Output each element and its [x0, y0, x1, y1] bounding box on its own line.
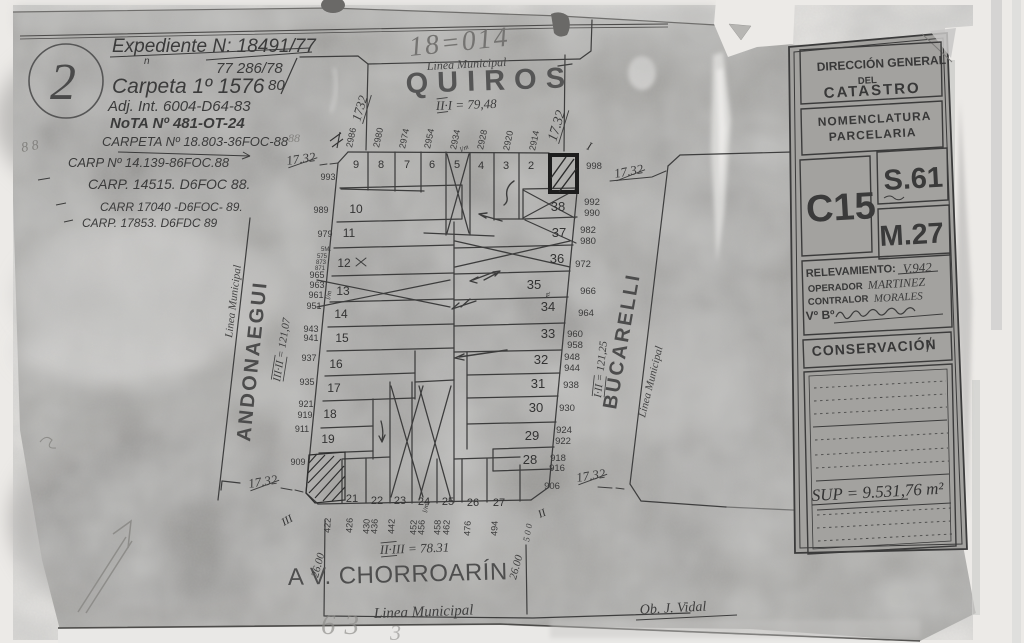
svg-text:456: 456 [416, 520, 427, 536]
svg-text:930: 930 [559, 403, 575, 414]
svg-text:29: 29 [525, 428, 539, 443]
svg-text:28: 28 [523, 452, 537, 467]
svg-text:l/m: l/m [421, 503, 430, 513]
svg-text:14: 14 [334, 307, 348, 321]
svg-text:88: 88 [288, 131, 300, 145]
svg-text:462: 462 [441, 520, 452, 536]
svg-text:M.27: M.27 [879, 217, 945, 253]
svg-text:989: 989 [313, 205, 328, 215]
svg-text:25: 25 [442, 496, 454, 508]
svg-text:Vº Bº: Vº Bº [805, 307, 835, 323]
svg-text:906: 906 [544, 481, 560, 492]
svg-text:916: 916 [549, 463, 565, 474]
svg-text:22: 22 [371, 495, 383, 507]
svg-text:965: 965 [309, 270, 324, 280]
svg-text:30: 30 [529, 400, 543, 415]
svg-text:964: 964 [578, 308, 594, 319]
svg-text:5: 5 [454, 159, 460, 171]
svg-text:CARR 17040 -D6FOC- 89.: CARR 17040 -D6FOC- 89. [100, 200, 243, 214]
svg-text:422: 422 [322, 518, 333, 534]
svg-text:990: 990 [584, 208, 600, 219]
svg-text:9: 9 [353, 159, 359, 171]
svg-text:426: 426 [344, 518, 355, 534]
svg-text:Carpeta 1º 1576: Carpeta 1º 1576 [112, 75, 265, 98]
svg-text:CARP. 17853. D6FDC 89: CARP. 17853. D6FDC 89 [82, 216, 218, 230]
svg-text:3: 3 [389, 620, 401, 643]
svg-text:979: 979 [317, 229, 332, 239]
svg-text:18: 18 [323, 407, 337, 421]
svg-text:4: 4 [478, 160, 484, 172]
svg-text:992: 992 [584, 197, 600, 208]
svg-text:Adj. Int. 6004-D64-83: Adj. Int. 6004-D64-83 [107, 98, 251, 115]
svg-text:972: 972 [575, 259, 591, 270]
svg-text:12: 12 [337, 256, 351, 270]
svg-text:11: 11 [343, 226, 356, 240]
svg-text:16: 16 [329, 357, 343, 371]
svg-text:998: 998 [586, 161, 602, 172]
svg-text:919: 919 [297, 410, 312, 420]
svg-text:10: 10 [349, 202, 363, 216]
svg-text:909: 909 [290, 457, 305, 467]
svg-text:924: 924 [556, 425, 572, 436]
svg-text:15: 15 [335, 331, 349, 345]
svg-text:3: 3 [503, 160, 509, 172]
svg-text:958: 958 [567, 340, 583, 351]
svg-text:27: 27 [493, 497, 505, 509]
svg-text:n: n [144, 56, 150, 67]
svg-text:922: 922 [555, 436, 571, 447]
svg-text:938: 938 [563, 380, 579, 391]
svg-text:S.61: S.61 [883, 162, 944, 197]
svg-text:C15: C15 [805, 185, 877, 231]
svg-text:966: 966 [580, 286, 596, 297]
svg-text:961: 961 [308, 290, 323, 300]
svg-text:7: 7 [404, 159, 410, 171]
svg-text:921: 921 [298, 399, 313, 409]
svg-text:17: 17 [327, 381, 341, 395]
svg-text:35: 35 [527, 277, 541, 292]
svg-text:911: 911 [295, 424, 309, 434]
svg-text:980: 980 [580, 236, 596, 247]
svg-text:34: 34 [541, 299, 555, 314]
svg-text:960: 960 [567, 329, 583, 340]
svg-text:941: 941 [303, 333, 318, 343]
svg-text:937: 937 [301, 353, 316, 363]
svg-text:993: 993 [320, 172, 335, 182]
svg-text:38: 38 [551, 199, 565, 214]
svg-text:63: 63 [321, 609, 368, 641]
svg-text:NoTA Nº 481-OT-24: NoTA Nº 481-OT-24 [110, 115, 245, 132]
svg-text:21: 21 [346, 493, 358, 505]
svg-text:948: 948 [564, 352, 580, 363]
svg-text:23: 23 [394, 495, 406, 507]
svg-text:951: 951 [306, 301, 321, 311]
svg-text:944: 944 [564, 363, 580, 374]
svg-text:476: 476 [462, 521, 473, 537]
svg-text:436: 436 [369, 519, 380, 535]
svg-text:32: 32 [534, 352, 548, 367]
svg-text:494: 494 [489, 521, 500, 537]
svg-text:CARPETA Nº 18.803-36FOC-88: CARPETA Nº 18.803-36FOC-88 [102, 134, 289, 149]
svg-text:6: 6 [429, 159, 435, 171]
svg-text:19: 19 [321, 432, 335, 446]
svg-text:CARP Nº 14.139-86FOC.88: CARP Nº 14.139-86FOC.88 [68, 155, 230, 170]
svg-text:982: 982 [580, 225, 596, 236]
svg-text:33: 33 [541, 326, 555, 341]
svg-text:2: 2 [528, 160, 534, 172]
svg-text:935: 935 [299, 377, 314, 387]
svg-text:26: 26 [467, 497, 479, 509]
svg-text:37: 37 [552, 225, 566, 240]
svg-text:CARP. 14515. D6FOC 88.: CARP. 14515. D6FOC 88. [88, 176, 250, 192]
svg-text:2: 2 [50, 54, 76, 111]
svg-text:8: 8 [378, 159, 384, 171]
svg-text:l/m: l/m [324, 290, 333, 300]
svg-text:8 8: 8 8 [20, 138, 40, 156]
svg-text:31: 31 [531, 376, 545, 391]
svg-text:36: 36 [550, 251, 564, 266]
svg-text:442: 442 [386, 519, 397, 535]
svg-text:963: 963 [309, 280, 324, 290]
svg-text:13: 13 [336, 284, 350, 298]
svg-text:5M.: 5M. [321, 247, 331, 253]
